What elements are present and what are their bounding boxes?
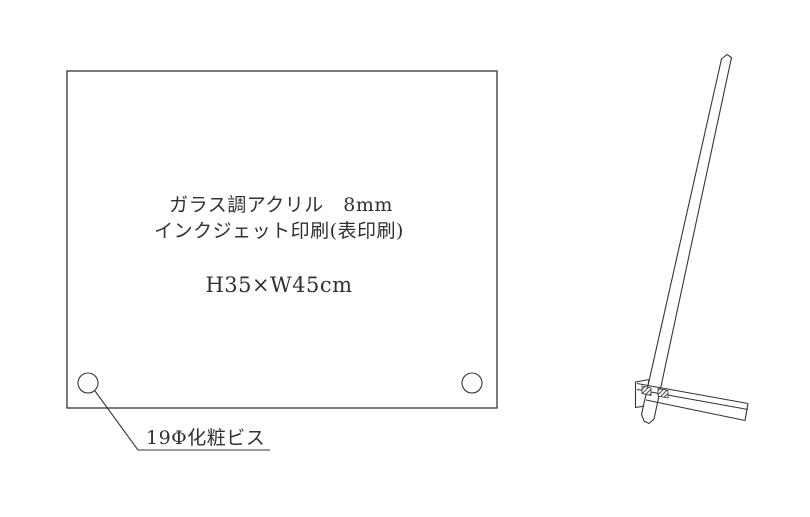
screw-callout: 19Φ化粧ビス — [95, 391, 270, 450]
technical-drawing-svg: ガラス調アクリル 8mm インクジェット印刷(表印刷) H35×W45cm 19… — [0, 0, 810, 517]
stand-arm-end-cap — [745, 404, 748, 421]
screw-section-hatch-inner — [642, 386, 651, 396]
stand-arm-bottom-edge — [646, 400, 745, 421]
drawing-canvas: ガラス調アクリル 8mm インクジェット印刷(表印刷) H35×W45cm 19… — [0, 0, 810, 517]
screw-callout-label: 19Φ化粧ビス — [146, 427, 265, 449]
material-spec-line1: ガラス調アクリル 8mm — [169, 194, 393, 216]
side-view — [636, 55, 749, 424]
front-view: ガラス調アクリル 8mm インクジェット印刷(表印刷) H35×W45cm — [67, 71, 497, 408]
screw-hole-left — [78, 373, 98, 393]
material-spec-line2: インクジェット印刷(表印刷) — [154, 220, 404, 242]
size-label: H35×W45cm — [205, 273, 352, 297]
side-panel-profile — [642, 55, 732, 424]
screw-hole-right — [462, 373, 482, 393]
screw-section-hatch-outer — [658, 389, 668, 399]
